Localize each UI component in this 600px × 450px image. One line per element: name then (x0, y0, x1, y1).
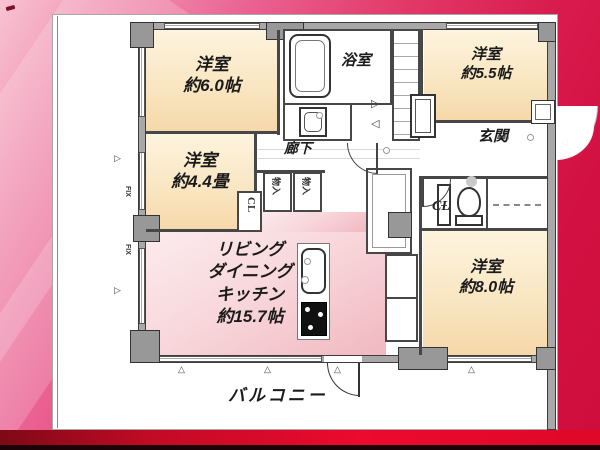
window-left-ldk (139, 248, 145, 324)
closet-hanger-pipe (493, 204, 541, 206)
window-marker-icon: △ (178, 364, 185, 375)
room-west55-size: 約5.5帖 (430, 65, 542, 84)
pillar-bottom-center (398, 347, 448, 370)
closet-storage-right-label: 物入 (300, 177, 313, 195)
balcony-label: バルコニー (228, 385, 328, 406)
pillar-top-right (538, 22, 556, 42)
shoe-cabinet-icon (410, 94, 436, 138)
balcony-door-opening (324, 356, 362, 362)
window-marker-icon: △ (468, 364, 475, 375)
vent-marker-icon: ▷ (114, 285, 121, 296)
toilet-vent-icon (466, 176, 477, 187)
fix-window-label-lower: FIX (124, 244, 131, 255)
toilet-icon (457, 187, 481, 217)
room-west44-size: 約4.4畳 (148, 171, 252, 192)
bottom-red-band (0, 430, 600, 446)
corridor-floor-line (258, 149, 420, 150)
corridor-dot (383, 147, 390, 154)
wall-toilet-right (486, 176, 488, 231)
ldk-area-upper (258, 212, 366, 234)
tall-cabinet (366, 168, 412, 254)
bathroom-label: 浴室 (332, 52, 380, 71)
pillar-top-left (130, 22, 154, 48)
vent-marker-icon: ▷ (114, 153, 121, 164)
ldk-door-leaf (376, 143, 378, 174)
corridor-floor-line (258, 158, 420, 159)
ldk-line3: キッチン (180, 284, 320, 306)
wall-west8-top (420, 228, 547, 231)
toilet-tank-icon (455, 215, 483, 226)
genkan-dot (527, 134, 534, 141)
bath-door-icon: ▷ (371, 117, 379, 130)
bathtub-icon (289, 34, 331, 98)
balcony-door-leaf (358, 363, 360, 397)
window-marker-icon: △ (334, 364, 341, 375)
genkan-label: 玄関 (478, 128, 508, 147)
closet-west8-divider (385, 297, 418, 299)
wall-west6-bottom (146, 131, 280, 134)
room-west55-label: 洋室 約5.5帖 (430, 46, 542, 84)
window-marker-icon: △ (264, 364, 271, 375)
floorplan-page: ◁ ▷ ▷ (0, 0, 600, 450)
room-west8-name: 洋室 (432, 258, 540, 278)
pillar-bottom-left (130, 330, 160, 363)
toilet-door-leaf (422, 179, 424, 207)
room-west6-label: 洋室 約6.0帖 (150, 54, 274, 97)
window-top-west6 (164, 23, 260, 29)
room-west8-size: 約8.0帖 (432, 278, 540, 298)
ldk-line2: ダイニング (180, 261, 320, 283)
bottom-dark-edge (0, 445, 600, 450)
room-west6-size: 約6.0帖 (150, 75, 274, 96)
window-left-west44 (139, 152, 145, 210)
window-left-west6 (139, 45, 145, 117)
room-west44-label: 洋室 約4.4畳 (148, 150, 252, 193)
wall-genkan-top (420, 120, 547, 123)
room-west6-name: 洋室 (150, 54, 274, 75)
pillar-cabinet (388, 212, 412, 238)
window-top-west55 (446, 23, 538, 29)
bath-door-icon: ▷ (371, 97, 379, 110)
fix-window-label-upper: FIX (124, 186, 131, 197)
washbasin-icon (299, 107, 327, 137)
meter-box (531, 100, 555, 124)
ldk-line1: リビング (180, 239, 320, 261)
closet-cl-right-label: CL (432, 199, 450, 215)
closet-cl-left-label: CL (245, 197, 257, 212)
entrance-marker-icon: ◁ (561, 137, 568, 148)
balcony-outer-edge (57, 16, 60, 428)
closet-storage-left-label: 物入 (270, 177, 283, 195)
wall-west6-right (277, 30, 280, 135)
room-west55-name: 洋室 (430, 46, 542, 65)
window-bottom-ldk (158, 356, 322, 362)
ldk-label: リビング ダイニング キッチン 約15.7帖 (180, 239, 320, 329)
room-west8-label: 洋室 約8.0帖 (432, 258, 540, 298)
room-west44-name: 洋室 (148, 150, 252, 171)
pillar-bottom-right (536, 347, 556, 370)
ldk-line4: 約15.7帖 (180, 306, 320, 328)
corridor-label: 廊下 (284, 140, 312, 158)
